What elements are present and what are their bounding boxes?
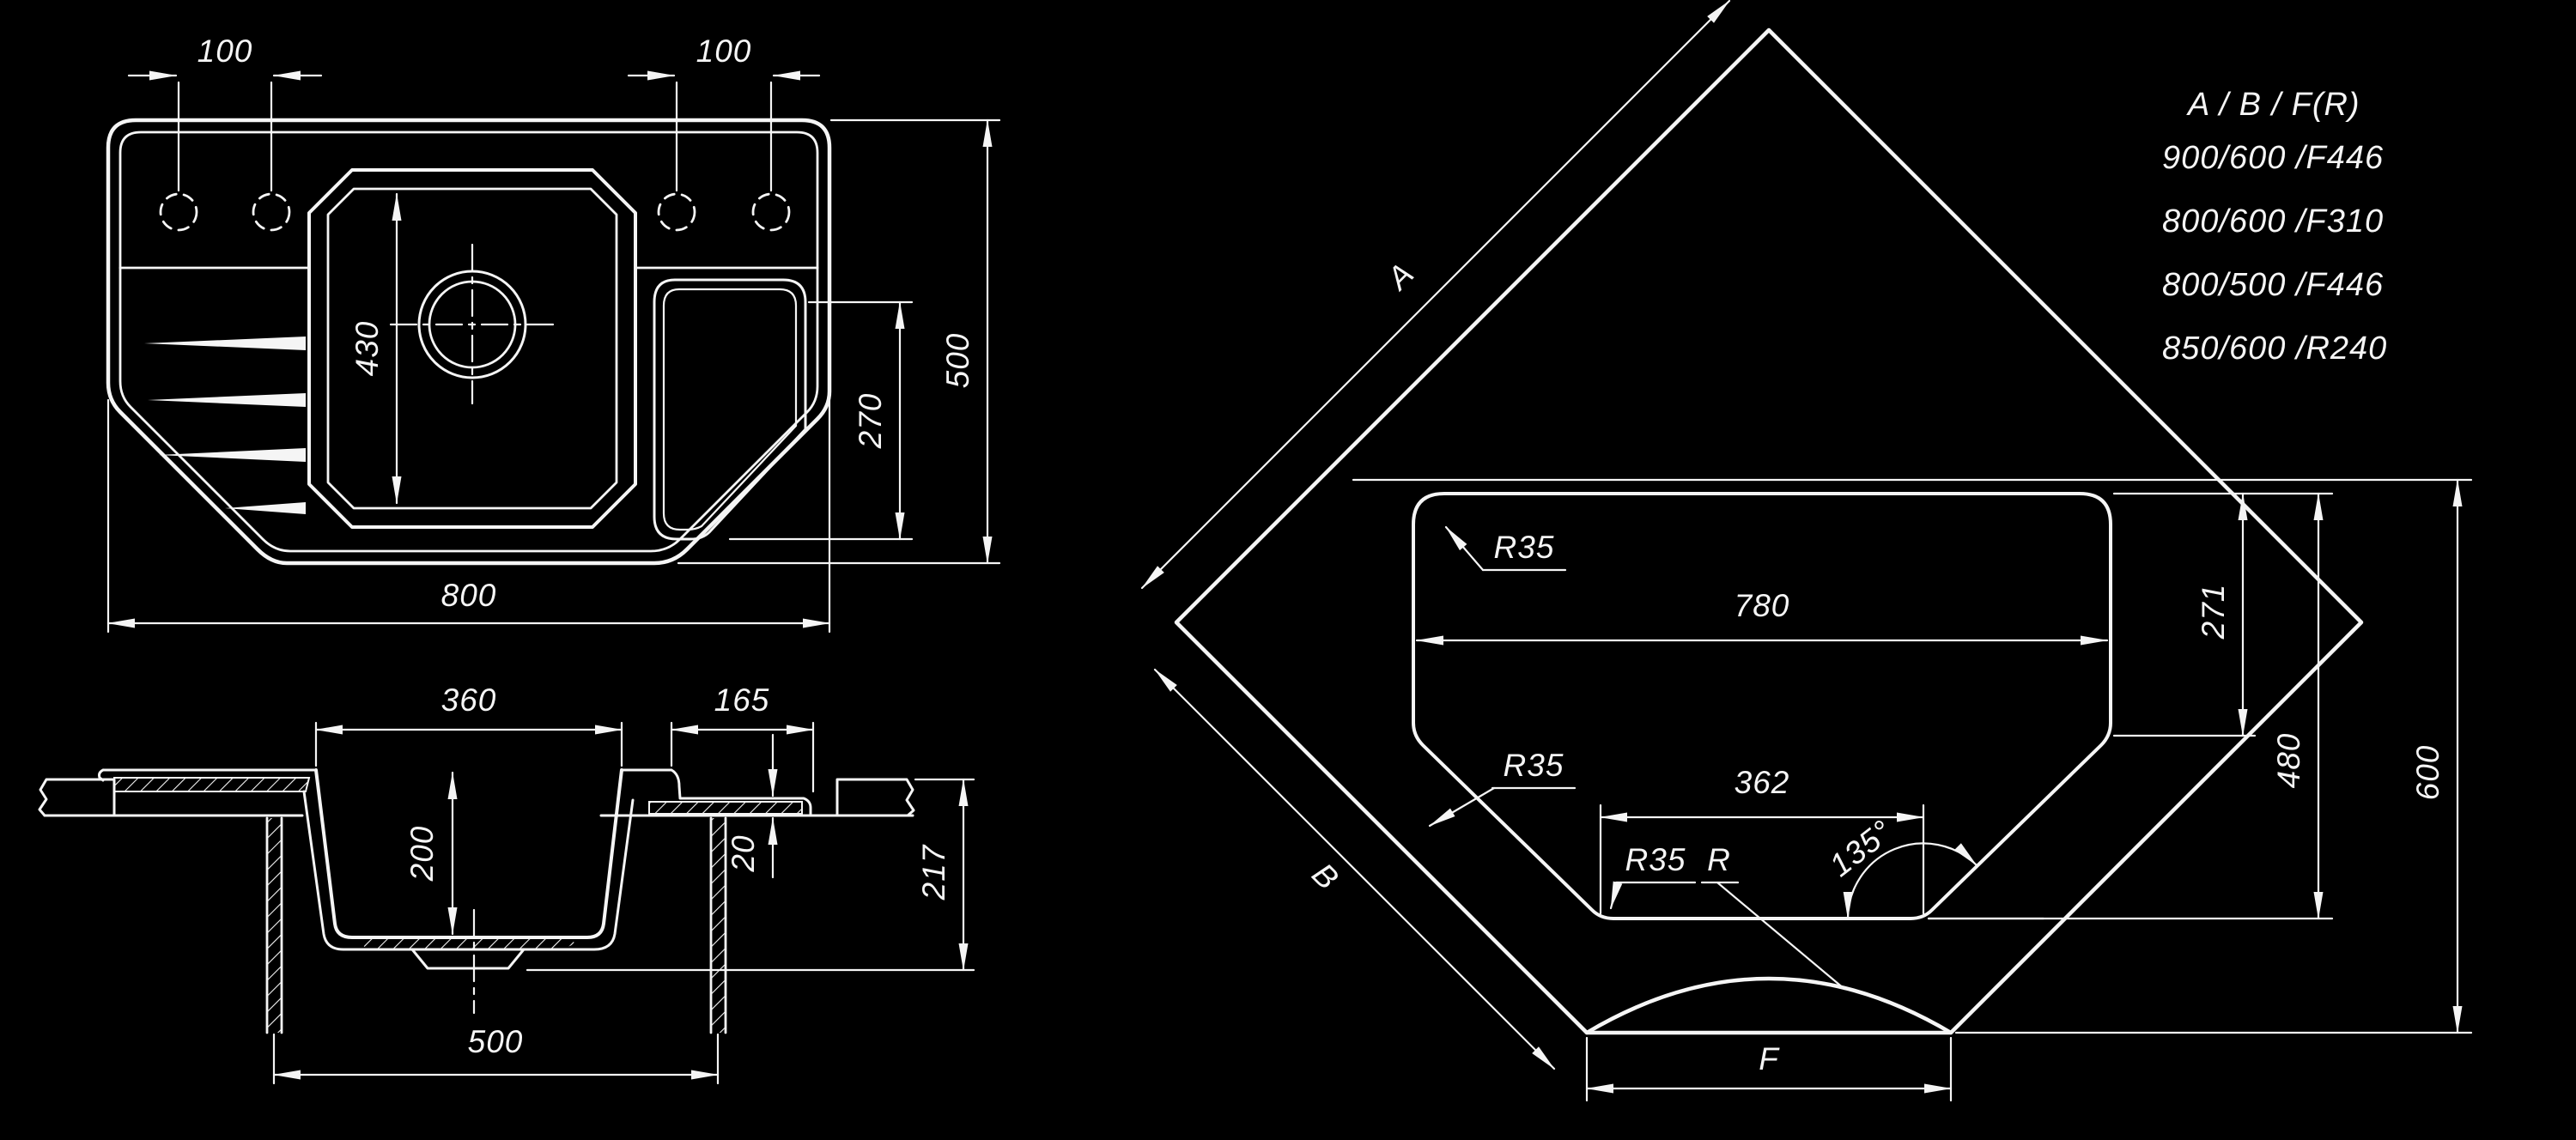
dim-label-step: 20 <box>726 834 761 872</box>
dim-label-hole-spacing-right: 100 <box>696 33 752 69</box>
countertop-slab-left <box>39 779 114 816</box>
countertop-slab-right <box>837 779 914 816</box>
dim-label-angle: 135° <box>1823 813 1899 883</box>
dim-label-overall-width: 800 <box>441 578 497 613</box>
dim-label-edge-a: A <box>1379 256 1421 298</box>
size-table-row-1: 900/600 /F446 <box>2162 140 2384 176</box>
dim-line-edge-a <box>1142 1 1729 588</box>
leader-line <box>1611 882 1618 908</box>
cabinet-wall-left-hatch <box>267 818 282 1033</box>
bowl-wall-inner <box>316 770 622 937</box>
sink-drawing-canvas: 100 100 430 270 500 800 <box>0 0 2576 1140</box>
leader-line <box>1446 527 1483 570</box>
leader-line-radius <box>1717 882 1844 989</box>
dim-label-front-width: F <box>1759 1041 1780 1076</box>
section-view: 360 165 200 20 217 500 <box>39 682 974 1083</box>
radius-label-top: R35 <box>1494 530 1555 565</box>
dim-label-flat-bottom: 362 <box>1735 765 1790 800</box>
dim-label-bowl-length: 430 <box>349 321 385 377</box>
size-table-header: A / B / F(R) <box>2186 87 2360 123</box>
side-bowl-inner <box>664 289 796 530</box>
dim-label-cabinet-width: 500 <box>468 1024 524 1059</box>
countertop-outline <box>1176 30 2361 1033</box>
technical-drawing-sheet: 100 100 430 270 500 800 <box>0 0 2576 1140</box>
ext-line <box>316 723 813 791</box>
dim-label-drainer-length: 270 <box>853 393 888 450</box>
front-edge-arc <box>1587 979 1951 1033</box>
size-table: A / B / F(R) 900/600 /F446 800/600 /F310… <box>2162 87 2387 367</box>
ext-line <box>179 82 771 191</box>
cabinet-wall-right-hatch <box>711 818 726 1033</box>
faucet-hole-4 <box>753 194 789 230</box>
dim-label-overall-depth: 500 <box>940 333 975 389</box>
size-table-row-2: 800/600 /F310 <box>2162 203 2384 240</box>
dim-label-wing-width: 165 <box>714 682 770 718</box>
dim-label-side-height: 271 <box>2196 584 2231 640</box>
faucet-hole-3 <box>659 194 695 230</box>
dim-label-cutout-depth: 480 <box>2271 733 2306 789</box>
bowl-wall-outer <box>304 791 633 949</box>
side-bowl-outer <box>654 280 805 539</box>
sink-deck-material-right <box>649 802 802 814</box>
drain-boss <box>412 949 524 968</box>
dim-label-total-height: 217 <box>916 844 951 900</box>
dim-label-edge-b: B <box>1305 857 1346 897</box>
dim-line-edge-b <box>1155 670 1554 1069</box>
radius-label-bottom: R35 <box>1625 842 1686 877</box>
size-table-row-3: 800/500 /F446 <box>2162 267 2384 303</box>
radius-label-mid: R35 <box>1504 748 1564 783</box>
bowl-shell-hatch <box>361 937 575 949</box>
size-table-row-4: 850/600 /R240 <box>2162 330 2387 367</box>
dim-label-cutout-width: 780 <box>1735 588 1790 623</box>
dim-label-bowl-top-width: 360 <box>441 682 497 718</box>
drainer-groove-1 <box>144 337 306 350</box>
dim-label-hole-spacing-left: 100 <box>197 33 253 69</box>
plan-view: 100 100 430 270 500 800 <box>108 33 999 632</box>
faucet-hole-1 <box>161 194 197 230</box>
drainer-groove-2 <box>148 393 306 407</box>
front-radius-label: R <box>1707 842 1731 877</box>
dim-label-counter-depth: 600 <box>2410 745 2445 801</box>
sink-deck-material-left <box>114 778 309 791</box>
dim-label-bowl-depth: 200 <box>404 826 440 882</box>
drainer-groove-3 <box>158 448 306 462</box>
faucet-hole-2 <box>253 194 289 230</box>
